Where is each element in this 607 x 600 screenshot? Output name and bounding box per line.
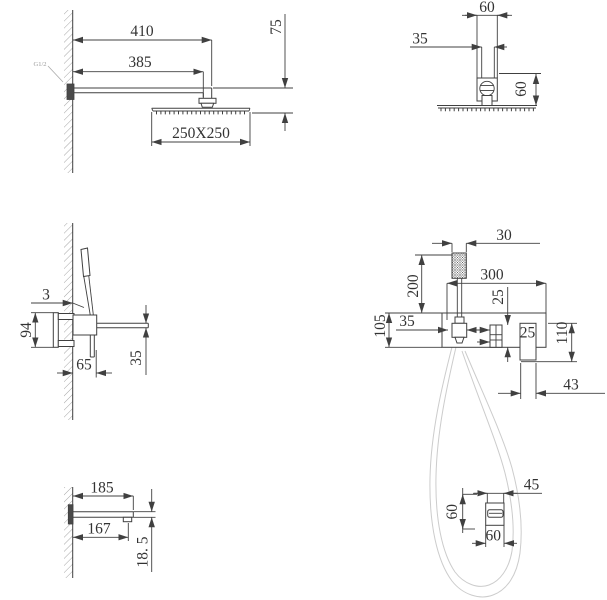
dim-300: 300 xyxy=(480,267,504,284)
dim-410: 410 xyxy=(130,23,154,40)
ball-neck xyxy=(482,96,492,106)
handset-collar xyxy=(455,317,464,323)
handset-grip-side xyxy=(81,248,90,277)
drawing-canvas: 410 385 75 250X250 G1/2 60 xyxy=(0,0,607,600)
mixer-body-side xyxy=(73,315,97,335)
dim-75: 75 xyxy=(268,19,285,35)
inwall-bracket-bar xyxy=(53,313,58,348)
wall-hatch-3 xyxy=(64,487,73,578)
wall-hatch-2 xyxy=(64,223,73,420)
dim-35-mixer-front: 35 xyxy=(399,313,415,330)
spout-nozzle xyxy=(123,517,131,521)
dim-385: 385 xyxy=(128,54,152,71)
dim-110: 110 xyxy=(554,321,571,344)
dim-35-mixer-side: 35 xyxy=(128,350,145,366)
spout-side-view: 185 167 18. 5 xyxy=(64,480,156,579)
dim-18-5: 18. 5 xyxy=(135,536,152,567)
dim-250x250: 250X250 xyxy=(172,125,230,142)
dim-43: 43 xyxy=(563,377,579,394)
leader-3 xyxy=(73,303,84,308)
dim-105: 105 xyxy=(372,314,389,338)
thread-label: G1/2 xyxy=(34,61,47,68)
dim-60-right: 60 xyxy=(513,81,530,97)
thread-leader xyxy=(48,66,63,82)
dim-25-outlet: 25 xyxy=(520,325,536,342)
hose-inner xyxy=(436,347,513,586)
head-nut xyxy=(199,98,216,103)
dim-45: 45 xyxy=(524,477,540,494)
technical-drawing: 410 385 75 250X250 G1/2 60 xyxy=(0,0,607,600)
mixer-side-view: 3 94 65 35 xyxy=(18,223,148,420)
dim-60-bottom: 60 xyxy=(486,528,502,545)
dim-60-top: 60 xyxy=(479,0,495,16)
dim-3: 3 xyxy=(42,287,50,304)
arm-wall-flange xyxy=(67,84,74,100)
dim-94: 94 xyxy=(18,322,35,338)
dim-35-top-right: 35 xyxy=(412,31,428,48)
dim-25-knob: 25 xyxy=(490,289,507,305)
rain-shower-side-view: 410 385 75 250X250 G1/2 xyxy=(34,10,294,173)
dim-60-left: 60 xyxy=(444,504,461,520)
inwall-bracket-tab-top xyxy=(58,314,74,320)
spout-wall-flange xyxy=(68,505,73,524)
dim-185: 185 xyxy=(90,480,114,497)
dim-167: 167 xyxy=(87,521,111,538)
handset-holder-socket xyxy=(452,323,467,337)
dim-200: 200 xyxy=(405,274,422,298)
dim-30: 30 xyxy=(496,227,512,244)
head-nut-taper xyxy=(201,103,214,107)
dim-65: 65 xyxy=(76,357,92,374)
holder-top-view: 45 60 60 xyxy=(444,477,542,548)
rain-shower-front-view: 60 35 60 xyxy=(410,0,541,110)
hose-outer xyxy=(430,347,521,597)
inwall-bracket-tab-bottom xyxy=(58,341,74,347)
handset-outlet-taper xyxy=(455,337,464,343)
handset-grip xyxy=(452,253,466,278)
